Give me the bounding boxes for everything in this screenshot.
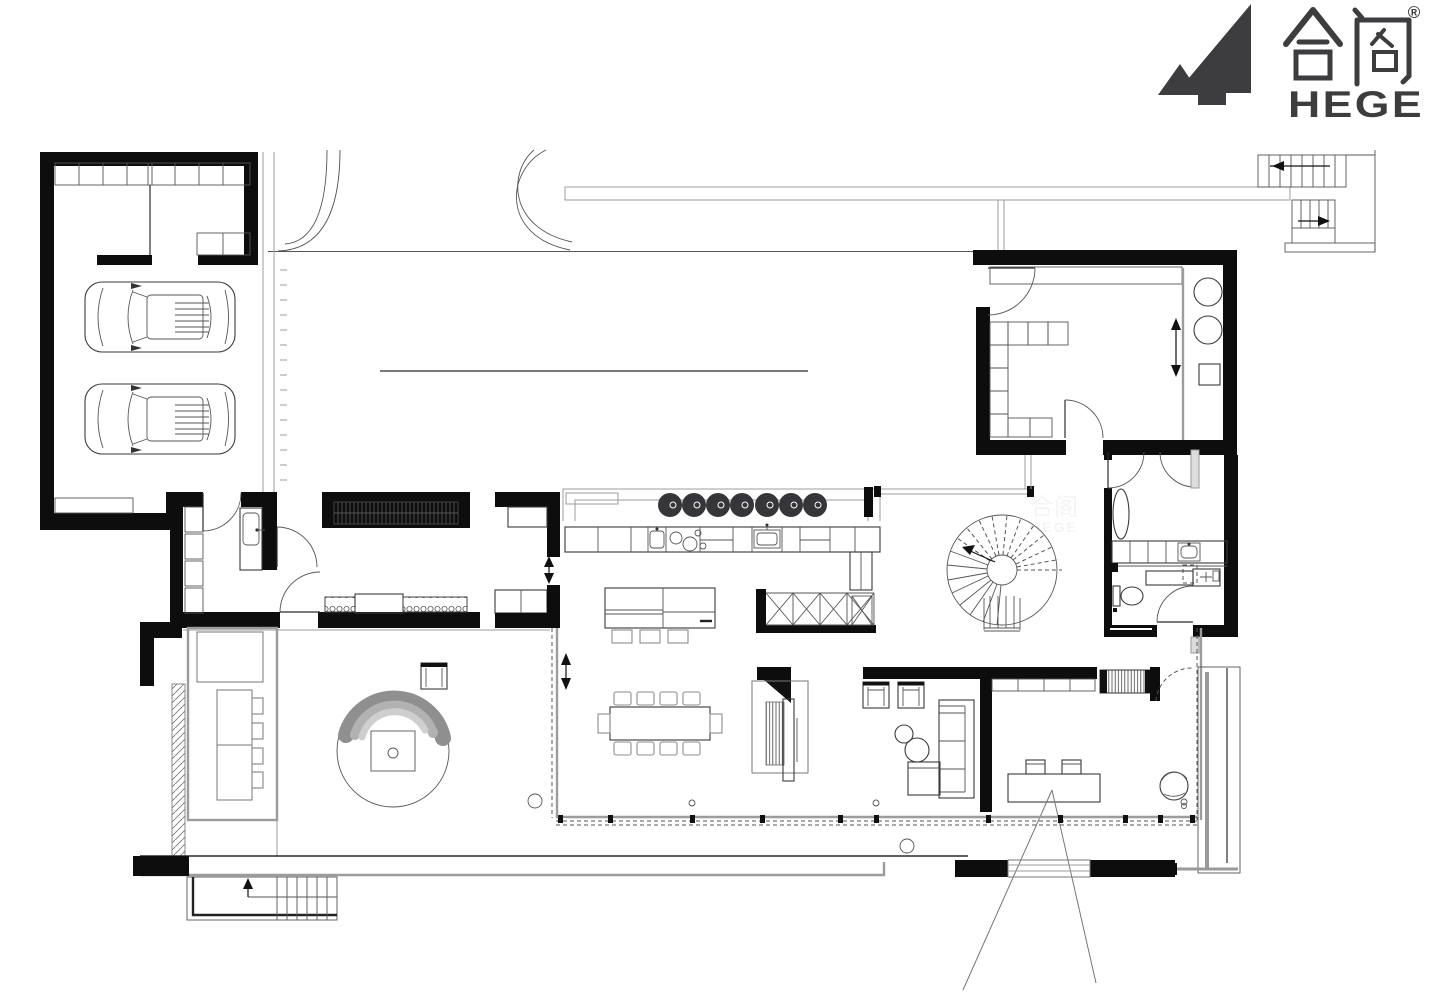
door-arc	[1065, 400, 1103, 438]
downlight	[528, 794, 542, 808]
stair-arrow-left	[1272, 161, 1284, 171]
site-wall	[565, 187, 1290, 200]
door-arc	[1157, 586, 1193, 622]
wine-rack	[756, 589, 876, 633]
sofa	[908, 700, 974, 798]
bathroom	[1104, 450, 1238, 637]
hanger-closet	[403, 597, 467, 612]
washer	[1194, 278, 1222, 306]
toilet-tank	[1113, 586, 1120, 606]
bathtub	[1113, 489, 1129, 539]
lounge-chair	[1160, 772, 1188, 809]
round-table	[905, 738, 929, 762]
garage-workbench	[55, 498, 133, 513]
door-arc	[988, 268, 1035, 315]
armchair	[863, 682, 889, 708]
sliding-door	[1191, 450, 1199, 488]
chaise	[908, 762, 940, 795]
logo-cjk-glyphs: 合阁	[1283, 10, 1411, 86]
steps-up-arrow	[243, 878, 253, 889]
kitchen	[563, 487, 880, 643]
logo-cjk-text: 合阁	[1283, 14, 1411, 86]
armchair	[898, 682, 924, 708]
floor-plan-drawing	[0, 0, 1430, 1000]
door-arc	[1156, 668, 1192, 701]
east-deck	[1158, 667, 1240, 875]
downlight	[1181, 799, 1187, 805]
media-wall	[752, 667, 808, 781]
registered-mark: ®	[1408, 3, 1421, 22]
door-arc	[1160, 452, 1195, 487]
dining-area	[561, 653, 722, 806]
terrace-window	[1008, 860, 1090, 877]
door-arc	[203, 493, 241, 531]
courtyard-tree	[337, 695, 449, 807]
utility-box	[1199, 364, 1220, 385]
leader-lines	[963, 790, 1096, 990]
utility-counter-cells	[990, 322, 1068, 437]
car-1	[85, 282, 235, 352]
study	[963, 667, 1192, 990]
kitchen-island	[605, 588, 715, 643]
bath-counter	[1112, 541, 1227, 563]
utility-room	[973, 250, 1237, 455]
mudroom-sink	[240, 508, 265, 570]
cooktop	[670, 530, 706, 551]
floor-plan-stage: 合阁 ® HEGE 合阁 HEGE	[0, 0, 1430, 1000]
door-arc	[1108, 452, 1144, 488]
garage	[40, 152, 258, 530]
wc	[1104, 566, 1238, 653]
outdoor-dining	[188, 628, 277, 820]
bath-sink	[1181, 546, 1197, 558]
wardrobe-corridor	[322, 492, 560, 628]
hanger-closet	[325, 597, 355, 612]
stair-direction-arrow	[962, 545, 975, 555]
kitchen-sink	[650, 531, 664, 548]
spiral-bottom-flight	[984, 596, 1020, 631]
desk	[1008, 760, 1100, 802]
hege-logo: 合阁 ® HEGE	[1148, 0, 1428, 124]
exterior-stairs	[1258, 150, 1375, 252]
mudroom-closet	[185, 507, 203, 613]
mountain-h-logo-icon	[1158, 4, 1251, 105]
car-2	[85, 384, 235, 454]
garage-cabinets	[55, 163, 250, 185]
dining-chairs	[614, 692, 700, 755]
spiral-treads-solid	[947, 551, 1001, 625]
spiral-staircase	[947, 515, 1062, 631]
toilet-bowl	[1121, 587, 1143, 605]
study-shelf	[992, 679, 1095, 691]
dryer	[1194, 316, 1222, 344]
dining-table	[610, 707, 710, 740]
floor-outlet	[873, 800, 879, 806]
courtyard-chair	[421, 663, 447, 689]
logo-latin-text: HEGE	[1288, 84, 1424, 124]
stool-dashed	[1183, 565, 1197, 583]
sliding-door	[1191, 637, 1199, 653]
kitchen-counter	[565, 527, 880, 552]
bar-stools	[658, 493, 827, 517]
floor-outlet	[689, 800, 695, 806]
entry-hall	[874, 455, 1034, 497]
downlight	[900, 839, 914, 853]
door-arc	[280, 572, 320, 612]
door-arc	[277, 527, 317, 567]
bookshelf	[1100, 670, 1152, 693]
courtyard	[140, 622, 550, 858]
tree-planter	[371, 731, 415, 771]
terrace-steps	[187, 877, 337, 920]
deck-hatch-strip	[172, 684, 185, 858]
living-area	[752, 667, 985, 806]
